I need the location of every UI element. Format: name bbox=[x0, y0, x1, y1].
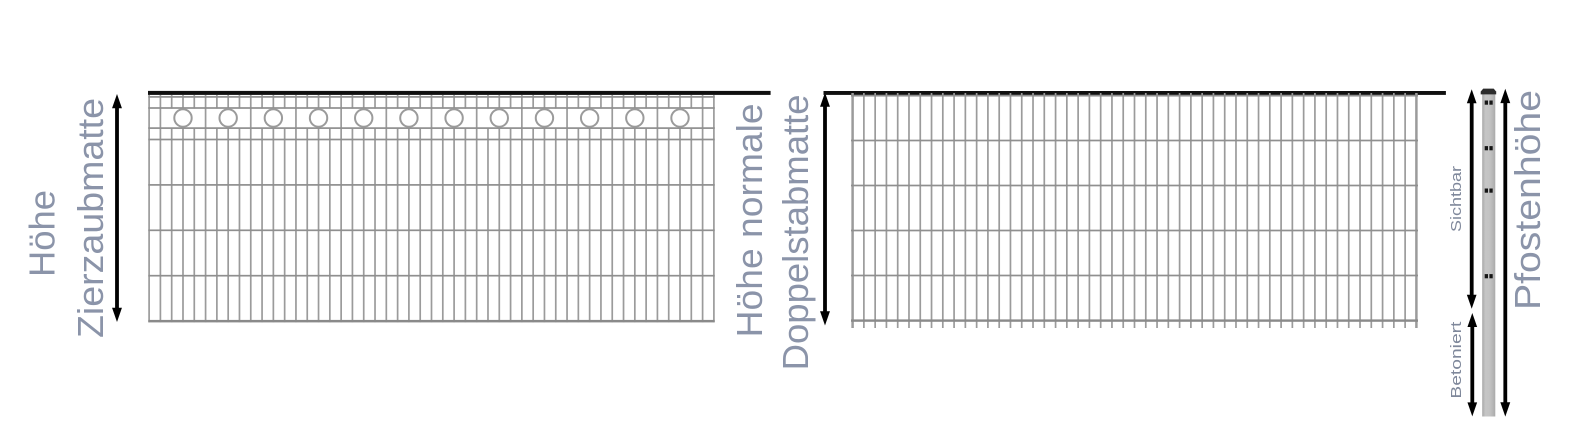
svg-text:Sichtbar: Sichtbar bbox=[1448, 166, 1465, 232]
svg-text:Zierzaubmatte: Zierzaubmatte bbox=[70, 98, 111, 338]
svg-text:Höhe normale: Höhe normale bbox=[729, 103, 770, 337]
svg-text:Doppelstabmatte: Doppelstabmatte bbox=[775, 94, 816, 370]
svg-text:Höhe: Höhe bbox=[22, 190, 63, 277]
svg-text:Pfostenhöhe: Pfostenhöhe bbox=[1507, 90, 1548, 310]
svg-text:Betoniert: Betoniert bbox=[1448, 321, 1465, 399]
